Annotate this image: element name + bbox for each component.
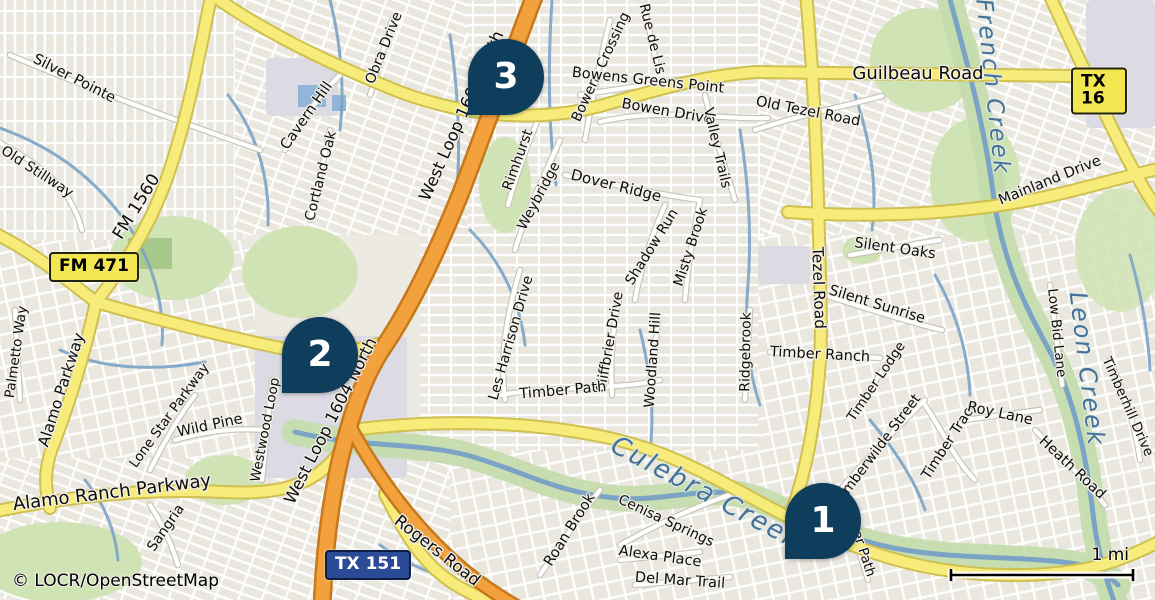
map-canvas[interactable]: Silver PointeOld StillwayFM 1560Palmetto… xyxy=(0,0,1155,600)
map-marker-1[interactable]: 1 xyxy=(785,483,861,559)
map-marker-3[interactable]: 3 xyxy=(468,39,544,115)
scale-bar: 1 mi xyxy=(947,549,1137,587)
road-label-ridgebrook: Ridgebrook xyxy=(738,312,753,392)
map-attribution: © LOCR/OpenStreetMap xyxy=(12,571,219,591)
route-badge-fm-471: FM 471 xyxy=(49,252,139,282)
map-marker-2[interactable]: 2 xyxy=(282,317,358,393)
route-badge-tx-16: TX 16 xyxy=(1071,68,1127,115)
scale-label: 1 mi xyxy=(1091,545,1129,565)
road-label-tezel-road: Tezel Road xyxy=(809,247,827,330)
marker-number: 1 xyxy=(810,503,835,539)
route-badge-tx-151: TX 151 xyxy=(325,550,411,580)
marker-number: 2 xyxy=(307,337,332,373)
marker-number: 3 xyxy=(493,59,518,95)
road-label-guilbeau-road: Guilbeau Road xyxy=(852,65,983,83)
